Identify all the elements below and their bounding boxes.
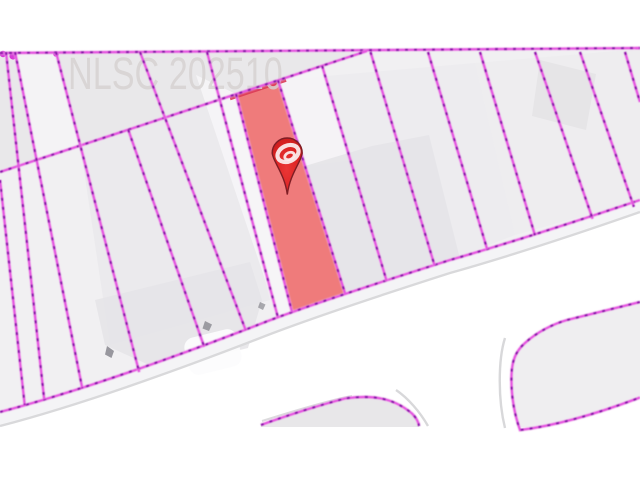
svg-text:NLSC 202510: NLSC 202510 <box>68 50 283 100</box>
